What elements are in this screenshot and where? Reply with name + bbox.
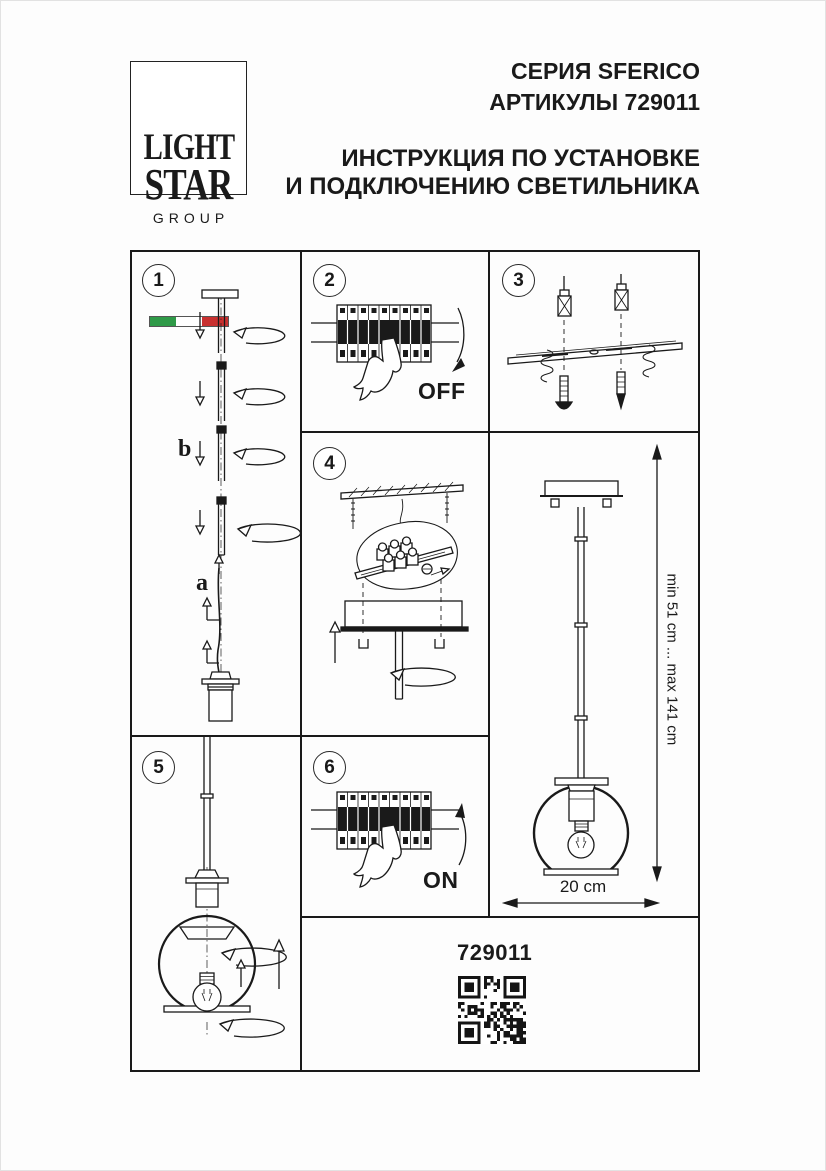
article-title: АРТИКУЛЫ 729011 [285, 87, 700, 118]
logo-word-star: STAR [143, 168, 235, 202]
height-range-label: min 51 cm ... max 141 cm [664, 574, 681, 734]
step-1-panel: 1 b a [130, 250, 301, 737]
instruction-title-line2: И ПОДКЛЮЧЕНИЮ СВЕТИЛЬНИКА [285, 173, 700, 201]
qr-code [458, 976, 526, 1044]
logo-word-group: GROUP [131, 210, 246, 226]
step-1-label-a: a [196, 570, 208, 597]
overview-panel: min 51 cm ... max 141 cm 20 cm [490, 433, 700, 918]
article-number: 729011 [457, 940, 532, 966]
series-title: СЕРИЯ SFERICO [285, 56, 700, 87]
turn-on-arrow-icon [459, 811, 466, 865]
step-number-badge: 3 [502, 264, 535, 297]
step-number-badge: 6 [313, 751, 346, 784]
lightstar-logo: LIGHT STAR GROUP [130, 61, 247, 195]
diameter-label: 20 cm [543, 877, 623, 897]
step-number-badge: 2 [313, 264, 346, 297]
footer-cell: 729011 [301, 918, 700, 1072]
step-number-badge: 4 [313, 447, 346, 480]
instruction-title-line1: ИНСТРУКЦИЯ ПО УСТАНОВКЕ [285, 145, 700, 173]
header-titles: СЕРИЯ SFERICO АРТИКУЛЫ 729011 ИНСТРУКЦИЯ… [285, 56, 700, 201]
step-3-panel: 3 [490, 250, 700, 433]
breaker-on-label: ON [423, 867, 459, 894]
step-2-panel: 2 OFF [301, 250, 490, 433]
step-number-badge: 5 [142, 751, 175, 784]
instruction-grid: 1 b a 2 OFF [130, 250, 700, 1072]
instruction-sheet: LIGHT STAR GROUP СЕРИЯ SFERICO АРТИКУЛЫ … [0, 0, 826, 1171]
step-number-badge: 1 [142, 264, 175, 297]
turn-off-arrow-icon [457, 308, 464, 362]
breaker-off-label: OFF [418, 378, 466, 405]
step-1-label-b: b [178, 436, 191, 463]
logo-word-light: LIGHT [144, 134, 234, 162]
step-4-panel: 4 [301, 433, 490, 737]
step-1-diagram [130, 250, 301, 737]
instruction-title: ИНСТРУКЦИЯ ПО УСТАНОВКЕ И ПОДКЛЮЧЕНИЮ СВ… [285, 145, 700, 201]
step-5-panel: 5 [130, 737, 301, 1072]
step-5-diagram [130, 737, 301, 1072]
step-6-panel: 6 ON [301, 737, 490, 918]
